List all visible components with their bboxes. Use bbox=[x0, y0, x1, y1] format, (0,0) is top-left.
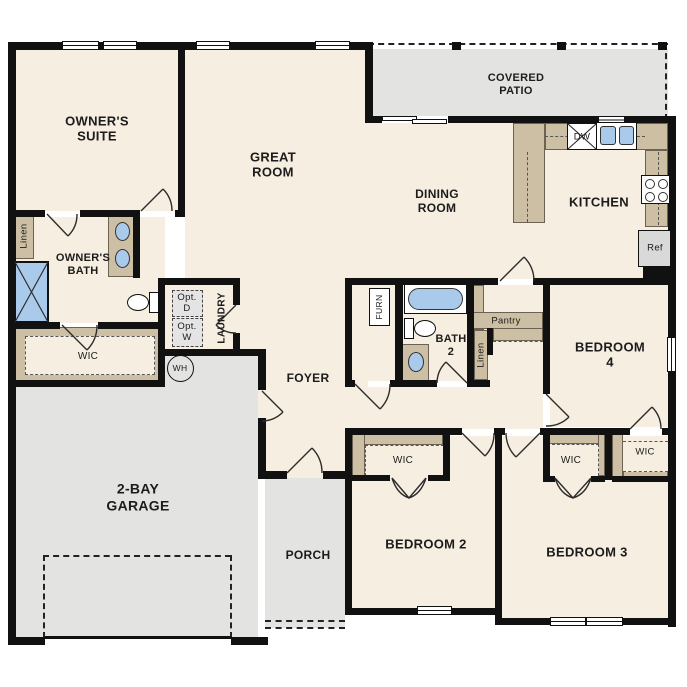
wall-segment bbox=[502, 618, 550, 625]
hall-closet-shelf bbox=[493, 328, 543, 341]
garage-door-dash bbox=[43, 555, 231, 557]
room-label-laundry: LAUNDRY bbox=[217, 292, 228, 343]
wall-segment bbox=[623, 618, 672, 625]
room-label-bath2: BATH 2 bbox=[436, 333, 467, 359]
burner bbox=[658, 179, 668, 189]
bedroom4-wic-shelf-left bbox=[612, 432, 623, 480]
window bbox=[62, 41, 99, 50]
wall-segment bbox=[605, 432, 612, 480]
label-bedroom2-wic: WIC bbox=[393, 455, 413, 467]
wall-segment bbox=[8, 637, 45, 645]
room-label-garage: 2-BAY GARAGE bbox=[106, 480, 169, 513]
label-bedroom3-wic: WIC bbox=[561, 455, 581, 467]
bedroom3-wic-shelf-right bbox=[598, 432, 605, 476]
floor-plan: OWNER'S SUITE GREAT ROOM COVERED PATIO D… bbox=[0, 0, 687, 687]
label-owners-linen: Linen bbox=[19, 223, 30, 248]
wall-segment bbox=[487, 328, 493, 355]
room-label-foyer: FOYER bbox=[287, 371, 330, 385]
room-label-covered-patio: COVERED PATIO bbox=[488, 72, 545, 98]
garage-door-dash bbox=[43, 555, 45, 638]
patio-post bbox=[658, 42, 667, 50]
garage-door-panel bbox=[45, 636, 231, 639]
wall-segment bbox=[98, 322, 165, 329]
wall-segment bbox=[365, 42, 373, 123]
wall-segment bbox=[233, 285, 240, 305]
wall-segment bbox=[467, 283, 474, 387]
label-furnace: FURN bbox=[374, 294, 384, 319]
room-label-bedroom4: BEDROOM 4 bbox=[572, 340, 649, 371]
bathroom-sink bbox=[408, 352, 424, 372]
window-bedroom3 bbox=[550, 617, 586, 626]
patio-edge-dashed bbox=[368, 43, 668, 45]
wall-segment bbox=[591, 476, 605, 482]
wall-segment bbox=[8, 322, 60, 329]
toilet-bowl bbox=[414, 320, 436, 337]
label-opt-dryer: Opt. D bbox=[177, 292, 196, 314]
wall-segment bbox=[352, 475, 390, 481]
toilet-tank bbox=[404, 318, 414, 339]
room-label-owners-suite: OWNER'S SUITE bbox=[65, 114, 129, 145]
room-label-bedroom2: BEDROOM 2 bbox=[385, 536, 466, 551]
wall-segment bbox=[80, 210, 140, 217]
bathtub bbox=[408, 288, 463, 310]
wall-segment bbox=[540, 428, 630, 435]
window-bedroom4 bbox=[667, 337, 676, 372]
hall-closet-rod-dash bbox=[493, 341, 543, 342]
wall-segment bbox=[175, 210, 185, 217]
wall-segment bbox=[448, 116, 598, 123]
toilet-tank bbox=[149, 292, 159, 313]
sink-basin bbox=[600, 126, 616, 145]
wall-segment bbox=[443, 432, 450, 480]
wall-segment bbox=[258, 418, 266, 473]
wall-segment bbox=[345, 278, 352, 387]
wall-segment bbox=[494, 428, 505, 435]
label-refrigerator: Ref bbox=[647, 242, 663, 253]
room-label-great-room: GREAT ROOM bbox=[250, 150, 296, 181]
burner bbox=[645, 192, 655, 202]
porch-edge-dashed bbox=[265, 627, 345, 629]
bedroom2-wic-shelf-left bbox=[352, 432, 365, 476]
label-dishwasher: DW bbox=[574, 131, 590, 142]
shower bbox=[14, 261, 49, 323]
bathroom-sink bbox=[115, 249, 130, 268]
patio-post bbox=[452, 42, 461, 50]
wall-segment bbox=[178, 42, 185, 217]
window-bedroom3 bbox=[586, 617, 623, 626]
wall-segment bbox=[662, 428, 672, 435]
wall-segment bbox=[345, 608, 417, 615]
wall-segment bbox=[395, 283, 403, 383]
label-pantry: Pantry bbox=[491, 315, 520, 326]
label-hall-linen: Linen bbox=[476, 342, 487, 367]
wall-segment bbox=[8, 42, 16, 645]
window bbox=[196, 41, 230, 50]
kitchen-peninsula bbox=[513, 123, 545, 223]
wall-segment bbox=[428, 475, 450, 481]
wall-segment bbox=[668, 372, 676, 627]
patio-post bbox=[557, 42, 566, 50]
wall-segment bbox=[543, 476, 555, 482]
wall-segment bbox=[158, 278, 240, 285]
room-label-porch: PORCH bbox=[286, 548, 331, 562]
label-owners-wic: WIC bbox=[78, 351, 98, 363]
porch-edge-dashed bbox=[265, 620, 345, 622]
wall-segment bbox=[345, 380, 355, 387]
wall-segment bbox=[158, 349, 266, 356]
patio-edge-dashed bbox=[665, 43, 667, 120]
wall-segment bbox=[8, 380, 165, 387]
wall-segment bbox=[231, 637, 268, 645]
floor-hall bbox=[345, 387, 543, 429]
label-bedroom4-wic: WIC bbox=[635, 446, 654, 457]
toilet-bowl bbox=[127, 294, 149, 311]
bathroom-sink bbox=[115, 222, 130, 241]
wall-segment bbox=[543, 432, 550, 480]
room-label-kitchen: KITCHEN bbox=[569, 194, 629, 209]
wall-segment bbox=[345, 429, 352, 615]
wall-segment bbox=[643, 267, 676, 280]
label-water-heater: WH bbox=[173, 363, 188, 373]
wall-segment bbox=[495, 429, 502, 625]
wall-segment bbox=[543, 278, 550, 394]
sink-basin bbox=[619, 126, 634, 145]
wall-segment bbox=[133, 215, 140, 278]
room-label-dining-room: DINING ROOM bbox=[415, 187, 459, 215]
window bbox=[103, 41, 137, 50]
wall-segment bbox=[258, 353, 266, 390]
upper-cabinet-dash bbox=[527, 152, 528, 222]
burner bbox=[645, 179, 655, 189]
burner bbox=[658, 192, 668, 202]
wall-segment bbox=[258, 471, 287, 479]
garage-door-dash bbox=[230, 555, 232, 638]
sliding-door-panel bbox=[412, 119, 447, 124]
wall-segment bbox=[158, 278, 165, 387]
window bbox=[315, 41, 350, 50]
room-label-owners-bath: OWNER'S BATH bbox=[56, 252, 110, 278]
label-opt-washer: Opt. W bbox=[177, 321, 196, 343]
wall-segment bbox=[612, 476, 668, 482]
window-bedroom2 bbox=[417, 606, 452, 615]
room-label-bedroom3: BEDROOM 3 bbox=[546, 544, 627, 559]
wall-segment bbox=[668, 116, 676, 337]
wall-segment bbox=[8, 210, 45, 217]
